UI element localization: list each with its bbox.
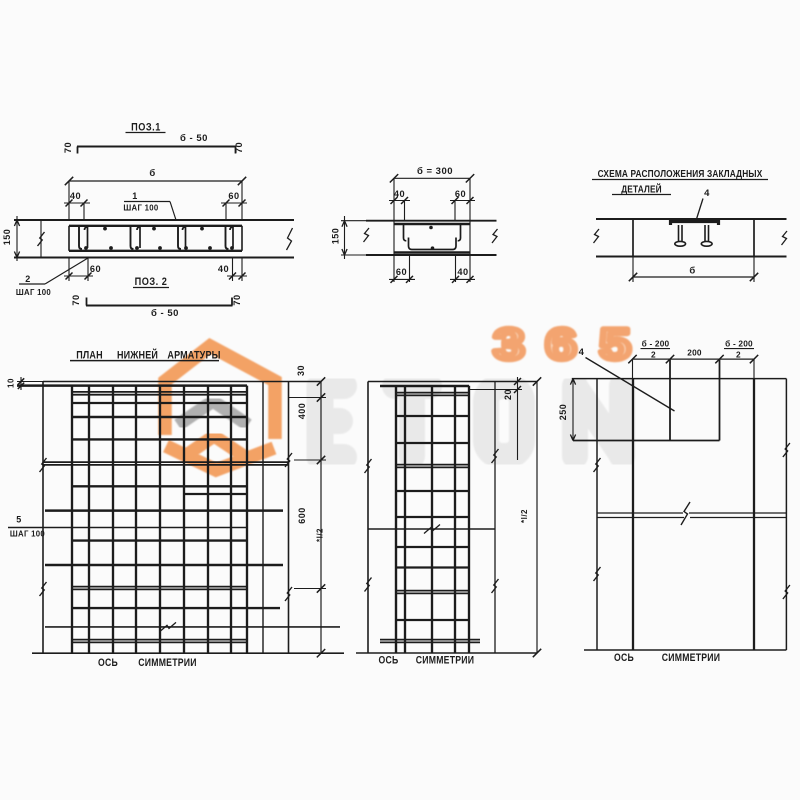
svg-text:150: 150 [331, 228, 341, 245]
svg-text:б - 200: б - 200 [642, 339, 670, 349]
svg-text:ОСЬ: ОСЬ [98, 657, 118, 669]
svg-text:4: 4 [704, 188, 710, 199]
svg-text:6: 6 [545, 319, 576, 369]
svg-text:НИЖНЕЙ: НИЖНЕЙ [117, 348, 158, 362]
svg-text:ШАГ 100: ШАГ 100 [123, 204, 159, 213]
svg-text:б: б [689, 266, 695, 277]
svg-text:б - 50: б - 50 [151, 308, 179, 319]
svg-text:70: 70 [71, 294, 81, 305]
svg-text:*l/2: *l/2 [316, 528, 325, 542]
svg-text:10: 10 [7, 378, 16, 388]
svg-text:250: 250 [558, 404, 568, 421]
svg-text:60: 60 [228, 191, 239, 201]
svg-text:ШАГ 100: ШАГ 100 [16, 288, 52, 297]
svg-text:б: б [149, 168, 155, 179]
svg-text:б - 50: б - 50 [180, 133, 208, 144]
svg-text:ПОЗ. 2: ПОЗ. 2 [135, 276, 168, 288]
svg-text:40: 40 [457, 267, 468, 277]
svg-text:5: 5 [16, 515, 22, 525]
svg-text:2: 2 [25, 274, 31, 284]
svg-text:70: 70 [63, 142, 73, 153]
svg-text:ОСЬ: ОСЬ [614, 652, 634, 664]
svg-text:2: 2 [736, 350, 741, 360]
svg-text:б = 300: б = 300 [417, 166, 453, 177]
svg-text:б - 200: б - 200 [725, 339, 753, 349]
svg-text:ДЕТАЛЕЙ: ДЕТАЛЕЙ [621, 183, 662, 195]
svg-text:20: 20 [503, 389, 513, 400]
svg-text:1: 1 [132, 191, 138, 201]
svg-text:СХЕМА РАСПОЛОЖЕНИЯ ЗАКЛАДНЫХ: СХЕМА РАСПОЛОЖЕНИЯ ЗАКЛАДНЫХ [598, 167, 763, 179]
svg-text:*l/2: *l/2 [520, 509, 529, 523]
svg-text:СИММЕТРИИ: СИММЕТРИИ [662, 652, 721, 664]
svg-text:СИММЕТРИИ: СИММЕТРИИ [416, 655, 475, 667]
svg-text:2: 2 [651, 350, 656, 360]
svg-text:600: 600 [297, 507, 307, 524]
svg-text:60: 60 [396, 267, 407, 277]
svg-text:150: 150 [2, 229, 12, 246]
svg-text:70: 70 [234, 142, 244, 153]
svg-text:400: 400 [297, 403, 307, 420]
svg-text:5: 5 [599, 319, 630, 369]
svg-text:4: 4 [579, 347, 585, 358]
svg-text:3: 3 [493, 319, 524, 369]
svg-text:СИММЕТРИИ: СИММЕТРИИ [138, 657, 197, 669]
svg-text:60: 60 [90, 264, 101, 274]
svg-text:40: 40 [394, 189, 405, 199]
svg-text:ШАГ 100: ШАГ 100 [10, 530, 46, 539]
svg-text:70: 70 [232, 294, 242, 305]
svg-text:200: 200 [687, 348, 702, 358]
svg-text:60: 60 [455, 189, 466, 199]
svg-text:40: 40 [218, 264, 229, 274]
svg-text:ОСЬ: ОСЬ [378, 655, 398, 667]
svg-text:30: 30 [296, 365, 306, 376]
